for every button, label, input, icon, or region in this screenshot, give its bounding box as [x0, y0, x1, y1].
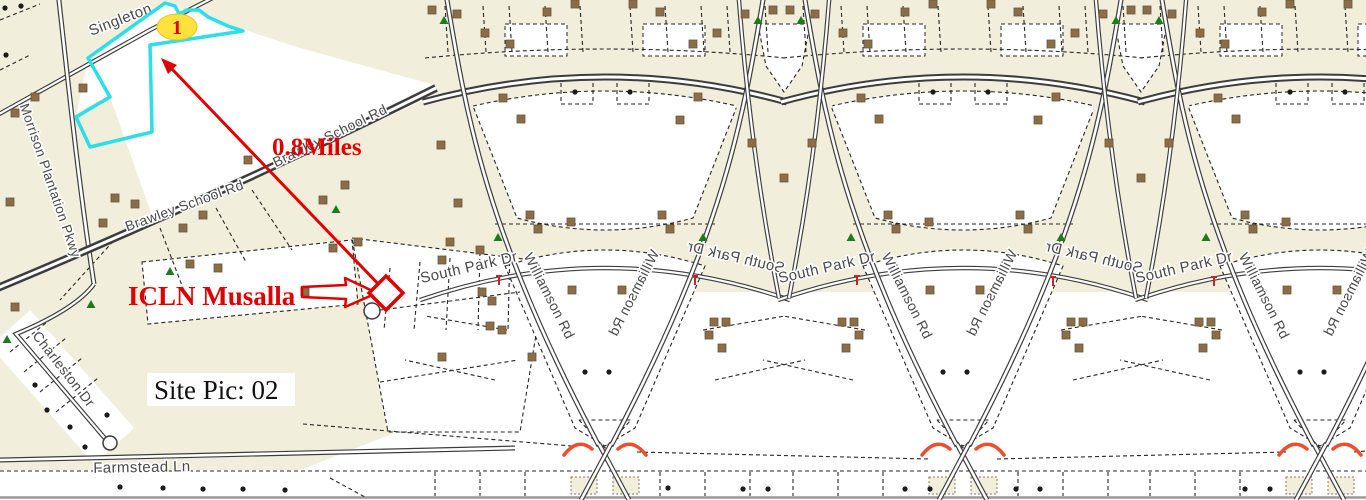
- building-icon: [694, 93, 702, 101]
- building-icon: [780, 174, 788, 182]
- building-icon: [842, 344, 850, 352]
- building-icon: [428, 6, 436, 14]
- building-icon: [79, 84, 87, 92]
- building-icon: [1014, 8, 1022, 16]
- building-icon: [131, 200, 139, 208]
- septic-dot-icon: [117, 484, 122, 489]
- building-icon: [488, 297, 496, 305]
- septic-dot-icon: [665, 485, 670, 490]
- building-icon: [705, 331, 713, 339]
- building-icon: [884, 211, 892, 219]
- building-icon: [568, 286, 576, 294]
- building-icon: [506, 40, 514, 48]
- building-icon: [437, 141, 445, 149]
- building-icon: [1034, 116, 1042, 124]
- building-icon: [476, 246, 484, 254]
- building-icon: [481, 29, 489, 37]
- building-icon: [850, 318, 858, 326]
- building-icon: [1195, 318, 1203, 326]
- septic-dot-icon: [582, 369, 587, 374]
- building-icon: [446, 238, 454, 246]
- septic-dot-icon: [200, 486, 205, 491]
- septic-dot-icon: [940, 369, 945, 374]
- building-icon: [1062, 331, 1070, 339]
- building-icon: [354, 238, 362, 246]
- building-icon: [786, 6, 794, 14]
- septic-dot-icon: [3, 52, 8, 57]
- bottom-strip: [0, 470, 1366, 500]
- building-icon: [1221, 40, 1229, 48]
- building-icon: [929, 0, 937, 8]
- building-icon: [319, 196, 327, 204]
- building-icon: [875, 115, 883, 123]
- building-icon: [1075, 344, 1083, 352]
- septic-dot-icon: [18, 3, 23, 8]
- building-icon: [656, 8, 664, 16]
- building-icon: [1282, 218, 1290, 226]
- building-icon: [1283, 286, 1291, 294]
- building-icon: [1024, 225, 1032, 233]
- building-icon: [341, 181, 349, 189]
- building-icon: [571, 0, 579, 8]
- building-icon: [1249, 225, 1257, 233]
- building-icon: [1165, 139, 1173, 147]
- building-icon: [31, 93, 39, 101]
- septic-dot-icon: [2, 5, 7, 10]
- building-icon: [741, 10, 749, 18]
- building-icon: [99, 219, 107, 227]
- building-icon: [526, 211, 534, 219]
- building-icon: [244, 156, 252, 164]
- building-icon: [1241, 211, 1249, 219]
- building-icon: [329, 244, 337, 252]
- cul-de-sac: [364, 303, 380, 319]
- building-icon: [199, 211, 207, 219]
- building-icon: [811, 10, 819, 18]
- septic-dot-icon: [765, 486, 770, 491]
- building-icon: [11, 109, 19, 117]
- map-marker-1-number: 1: [172, 17, 182, 39]
- septic-dot-icon: [1321, 369, 1326, 374]
- building-icon: [1344, 0, 1352, 8]
- building-icon: [1067, 318, 1075, 326]
- building-icon: [987, 0, 995, 8]
- building-icon: [855, 331, 863, 339]
- building-icon: [517, 115, 525, 123]
- building-icon: [676, 116, 684, 124]
- septic-dot-icon: [282, 487, 287, 492]
- building-icon: [179, 224, 187, 232]
- septic-dot-icon: [927, 486, 932, 491]
- building-icon: [1143, 6, 1151, 14]
- building-icon: [689, 40, 697, 48]
- septic-dot-icon: [240, 486, 245, 491]
- building-icon: [1258, 8, 1266, 16]
- distance-label: 0.8Miles: [272, 134, 362, 161]
- septic-dot-icon: [572, 89, 577, 94]
- building-icon: [453, 10, 461, 18]
- map-canvas[interactable]: SingletonMorrison Plantation PkwyBrawley…: [0, 0, 1366, 500]
- septic-dot-icon: [82, 444, 87, 449]
- building-icon: [769, 6, 777, 14]
- building-icon: [1137, 174, 1145, 182]
- septic-dot-icon: [1297, 369, 1302, 374]
- building-icon: [1071, 29, 1079, 37]
- building-icon: [1286, 0, 1294, 8]
- building-icon: [499, 94, 507, 102]
- building-icon: [1079, 318, 1087, 326]
- septic-dot-icon: [1267, 486, 1272, 491]
- building-icon: [111, 194, 119, 202]
- building-icon: [718, 344, 726, 352]
- building-icon: [567, 218, 575, 226]
- building-icon: [1105, 139, 1113, 147]
- building-icon: [629, 0, 637, 8]
- building-icon: [748, 139, 756, 147]
- septic-dot-icon: [1037, 486, 1042, 491]
- building-icon: [1232, 115, 1240, 123]
- building-icon: [186, 260, 194, 268]
- building-icon: [1052, 93, 1060, 101]
- building-icon: [528, 353, 536, 361]
- building-icon: [722, 318, 730, 326]
- septic-dot-icon: [44, 407, 49, 412]
- building-icon: [925, 218, 933, 226]
- septic-dot-icon: [1342, 89, 1347, 94]
- building-icon: [808, 139, 816, 147]
- parcel-map[interactable]: SingletonMorrison Plantation PkwyBrawley…: [0, 0, 1366, 500]
- building-icon: [543, 8, 551, 16]
- building-icon: [438, 353, 446, 361]
- building-icon: [498, 326, 506, 334]
- septic-dot-icon: [1013, 486, 1018, 491]
- building-icon: [666, 225, 674, 233]
- building-icon: [534, 225, 542, 233]
- building-icon: [1212, 331, 1220, 339]
- building-icon: [892, 225, 900, 233]
- building-icon: [478, 288, 486, 296]
- site-name-label: ICLN Musalla: [128, 281, 296, 311]
- building-icon: [710, 318, 718, 326]
- cul-de-sac: [103, 436, 117, 450]
- septic-dot-icon: [627, 89, 632, 94]
- building-icon: [454, 199, 462, 207]
- septic-dot-icon: [1287, 89, 1292, 94]
- map-base-layer: [0, 0, 1366, 500]
- building-icon: [486, 322, 494, 330]
- building-icon: [1099, 10, 1107, 18]
- building-icon: [1207, 318, 1215, 326]
- site-pic-label: Site Pic: 02: [154, 375, 279, 405]
- building-icon: [838, 318, 846, 326]
- septic-dot-icon: [1242, 486, 1247, 491]
- septic-dot-icon: [160, 485, 165, 490]
- building-icon: [713, 29, 721, 37]
- building-icon: [1214, 94, 1222, 102]
- building-icon: [926, 286, 934, 294]
- building-icon: [1168, 10, 1176, 18]
- septic-dot-icon: [985, 89, 990, 94]
- building-icon: [1016, 211, 1024, 219]
- septic-dot-icon: [67, 424, 72, 429]
- septic-dot-icon: [606, 369, 611, 374]
- septic-dot-icon: [964, 369, 969, 374]
- septic-dot-icon: [902, 486, 907, 491]
- building-icon: [1047, 40, 1055, 48]
- building-icon: [1196, 29, 1204, 37]
- building-icon: [658, 211, 666, 219]
- building-icon: [1199, 344, 1207, 352]
- septic-dot-icon: [740, 486, 745, 491]
- building-icon: [1127, 6, 1135, 14]
- septic-dot-icon: [930, 89, 935, 94]
- septic-dot-icon: [32, 382, 37, 387]
- building-icon: [438, 256, 446, 264]
- top-parcel: [1358, 24, 1366, 56]
- building-icon: [214, 264, 222, 272]
- building-icon: [901, 8, 909, 16]
- building-icon: [839, 29, 847, 37]
- building-icon: [857, 94, 865, 102]
- road-label-farmstead-ln: Farmstead Ln: [93, 458, 191, 477]
- building-icon: [6, 198, 14, 206]
- septic-dot-icon: [104, 412, 109, 417]
- building-icon: [864, 40, 872, 48]
- building-icon: [11, 303, 19, 311]
